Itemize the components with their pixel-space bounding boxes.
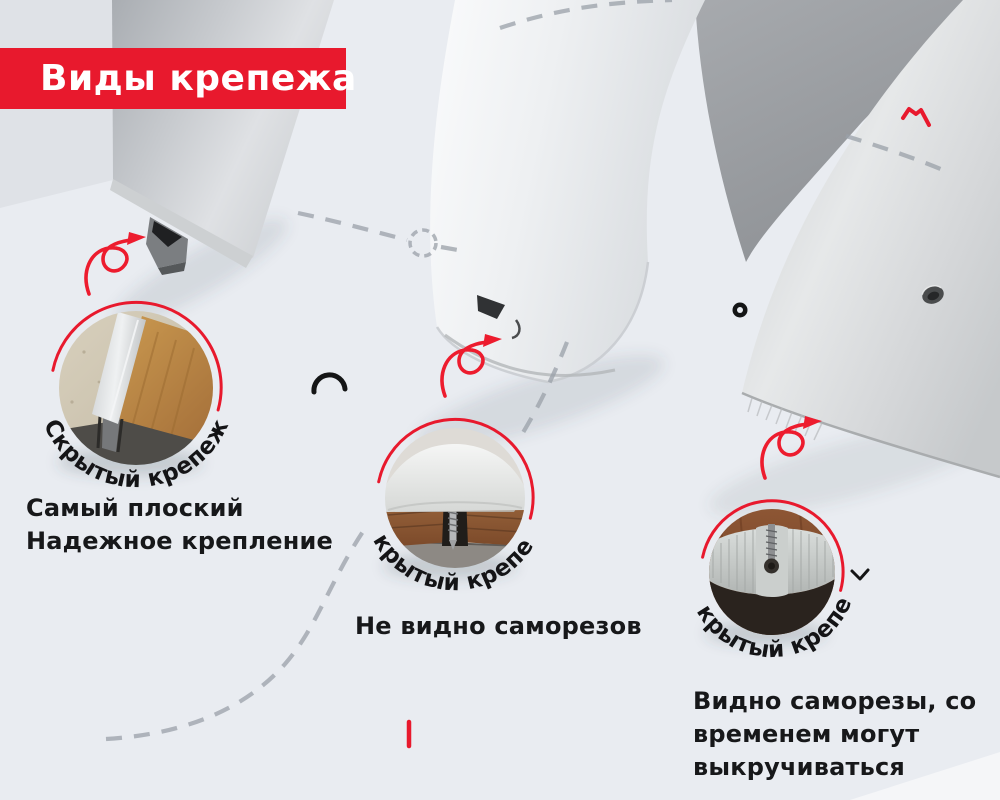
page-title: Виды крепежа [40, 58, 357, 99]
caption-line: Надежное крепление [26, 525, 333, 558]
caption-line: временем могут [693, 718, 976, 751]
title-banner: Виды крепежа [0, 48, 346, 109]
caption-line: Не видно саморезов [355, 610, 642, 643]
art-scene: Скрытый крепеж Скрытый крепеж Открытый к… [0, 0, 1000, 800]
caption-open: Видно саморезы, со временем могут выкруч… [693, 685, 976, 784]
caption-line: Самый плоский [26, 492, 333, 525]
caption-line: Видно саморезы, со [693, 685, 976, 718]
inset-photo-open [708, 509, 836, 635]
infographic-canvas: Скрытый крепеж Скрытый крепеж Открытый к… [0, 0, 1000, 800]
donut-mark-hole [737, 307, 743, 313]
caption-line: выкручиваться [693, 751, 976, 784]
caption-hidden-dome: Не видно саморезов [355, 610, 642, 643]
caption-hidden-t: Самый плоский Надежное крепление [26, 492, 333, 558]
